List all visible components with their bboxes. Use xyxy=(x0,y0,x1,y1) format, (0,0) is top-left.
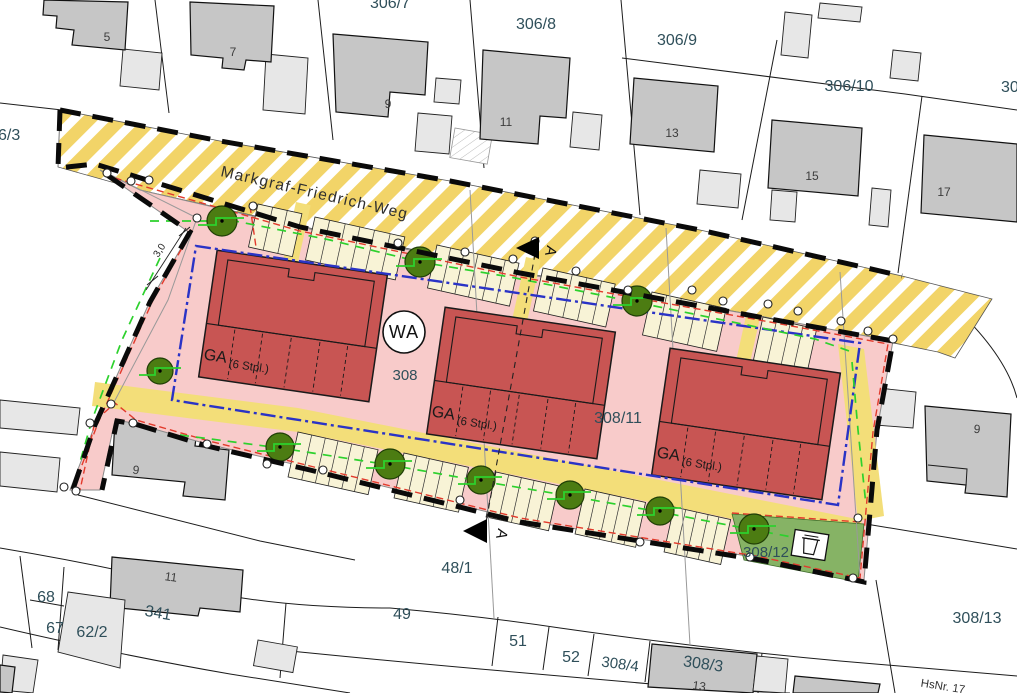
house-number-9: 9 xyxy=(385,97,392,111)
parcel-306-11: 306/11 xyxy=(1001,79,1017,96)
parcel-306-3: 6/3 xyxy=(0,127,20,144)
house-number-11: 11 xyxy=(500,115,513,129)
garage-15 xyxy=(770,190,797,222)
parcel-306-7: 306/7 xyxy=(370,0,410,12)
parcel-67: 67 xyxy=(46,620,64,637)
house-number-5: 5 xyxy=(104,30,111,44)
parcel-68: 68 xyxy=(37,589,55,606)
house-number-13-bottom: 13 xyxy=(692,678,707,693)
refuse-container-box xyxy=(791,530,829,561)
site-plan: Markgraf-Friedrich-Weg xyxy=(0,0,1017,693)
garage-5 xyxy=(120,49,162,90)
site-plan-canvas: Markgraf-Friedrich-Weg xyxy=(0,0,1017,693)
outbuilding-308-3 xyxy=(753,656,788,693)
garage-9b xyxy=(415,113,452,154)
parcel-51: 51 xyxy=(509,633,527,650)
parcel-49: 49 xyxy=(393,606,411,623)
garage-13 xyxy=(697,170,741,208)
house-number-13: 13 xyxy=(665,126,679,140)
planned-building-1: GA (6 Stpl.) xyxy=(199,250,388,401)
garage-17 xyxy=(869,188,891,227)
house-number-17: 17 xyxy=(937,185,951,199)
parcel-306-9: 306/9 xyxy=(657,32,697,49)
outbuilding-c xyxy=(890,50,921,81)
wa-label: WA xyxy=(389,322,419,342)
building-17 xyxy=(921,135,1017,222)
parcel-62-2: 62/2 xyxy=(76,624,107,641)
garage-label-1: GA xyxy=(203,347,229,367)
garage-label-3: GA xyxy=(656,445,682,465)
parcel-308-13: 308/13 xyxy=(953,610,1002,627)
house-number-7: 7 xyxy=(230,45,237,59)
building-corner-b xyxy=(0,665,15,693)
parcel-306-10: 306/10 xyxy=(825,78,874,95)
building-15 xyxy=(768,120,862,196)
parcel-52: 52 xyxy=(562,649,580,666)
parcel-308-12: 308/12 xyxy=(743,544,789,561)
building-13 xyxy=(630,78,718,152)
garage-label-2: GA xyxy=(431,404,457,424)
parcel-48-1: 48/1 xyxy=(441,560,472,577)
parcel-308-11: 308/11 xyxy=(594,410,642,427)
garage-7 xyxy=(263,54,308,114)
garage-11 xyxy=(570,112,602,150)
outbuilding-b xyxy=(781,12,812,58)
zone-wa: WA xyxy=(383,311,425,353)
garage-9a xyxy=(434,78,461,104)
planned-building-3: GA (6 Stpl.) xyxy=(652,348,841,499)
outbuilding-left-b xyxy=(0,452,60,492)
house-number-11-left: 11 xyxy=(164,569,179,585)
house-number-15: 15 xyxy=(805,169,819,183)
parcel-306-8: 306/8 xyxy=(516,16,556,33)
parcel-308: 308 xyxy=(392,367,417,384)
